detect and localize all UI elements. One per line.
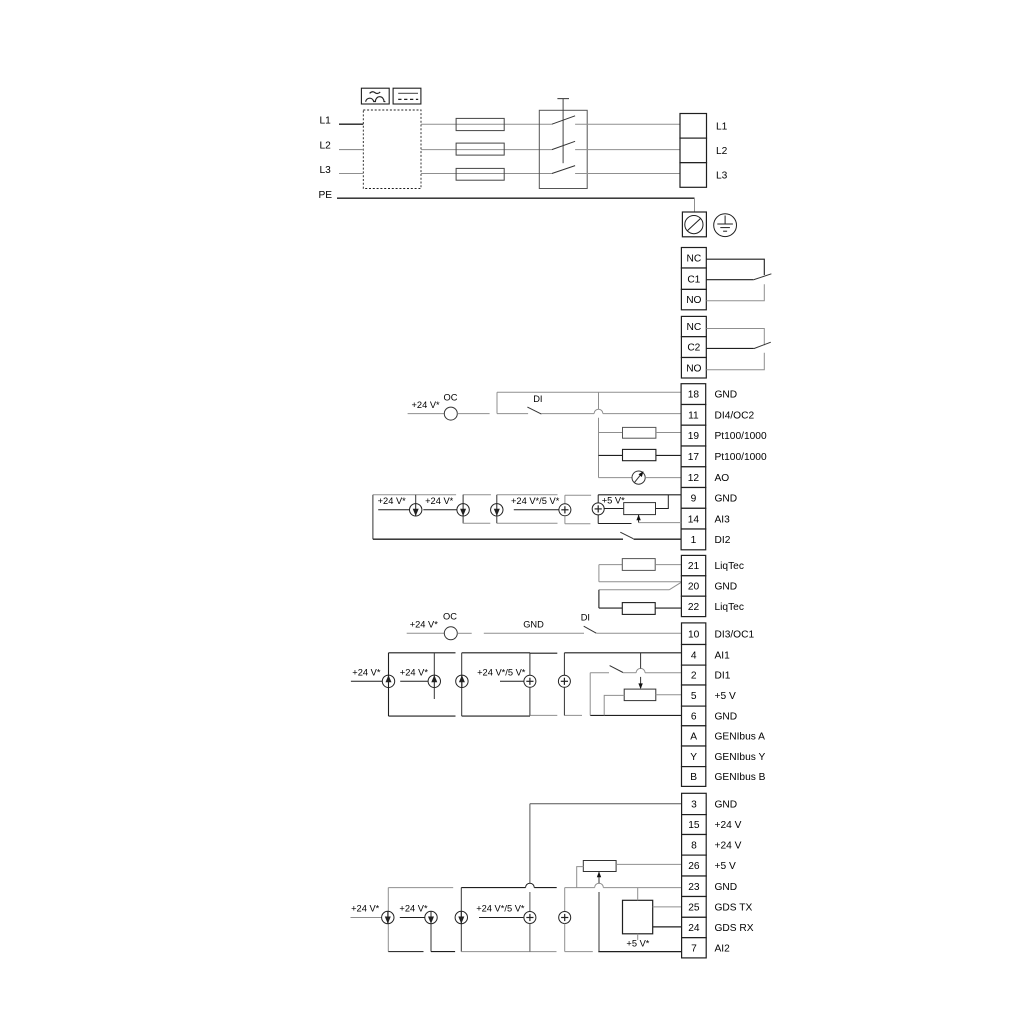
svg-text:1: 1 — [691, 535, 697, 546]
svg-text:25: 25 — [688, 903, 700, 914]
svg-text:PE: PE — [319, 190, 333, 201]
svg-text:10: 10 — [688, 629, 700, 640]
svg-text:+24 V*: +24 V* — [351, 904, 380, 914]
svg-text:C1: C1 — [687, 274, 700, 285]
svg-text:C2: C2 — [687, 343, 700, 354]
svg-text:+24 V*: +24 V* — [352, 668, 381, 678]
svg-text:GND: GND — [715, 390, 738, 401]
svg-text:6: 6 — [691, 712, 697, 723]
svg-text:AI1: AI1 — [715, 650, 731, 661]
svg-text:B: B — [690, 772, 697, 783]
svg-text:A: A — [690, 732, 697, 743]
svg-text:+24 V*: +24 V* — [399, 904, 428, 914]
svg-text:18: 18 — [688, 390, 700, 401]
svg-text:DI3/OC1: DI3/OC1 — [715, 629, 755, 640]
svg-text:GND: GND — [715, 712, 738, 723]
svg-text:+24 V*/5 V*: +24 V*/5 V* — [476, 904, 525, 914]
svg-text:GENIbus B: GENIbus B — [715, 772, 766, 783]
svg-text:GND: GND — [715, 494, 738, 505]
svg-text:+24 V*: +24 V* — [410, 620, 439, 630]
svg-text:DI4/OC2: DI4/OC2 — [715, 410, 755, 421]
svg-text:+5 V: +5 V — [715, 861, 736, 872]
svg-text:26: 26 — [688, 861, 700, 872]
svg-text:DI: DI — [581, 612, 590, 622]
svg-text:+5 V*: +5 V* — [602, 495, 625, 505]
svg-text:GDS RX: GDS RX — [715, 923, 754, 934]
svg-text:AI3: AI3 — [715, 514, 731, 525]
svg-text:17: 17 — [688, 452, 700, 463]
svg-text:+5 V: +5 V — [715, 691, 736, 702]
svg-text:GND: GND — [715, 800, 738, 811]
svg-text:+24 V*: +24 V* — [400, 668, 429, 678]
svg-text:DI2: DI2 — [715, 535, 731, 546]
svg-text:12: 12 — [688, 473, 700, 484]
svg-text:14: 14 — [688, 514, 700, 525]
svg-text:+24 V*: +24 V* — [378, 496, 407, 506]
svg-text:+24 V: +24 V — [715, 840, 742, 851]
svg-text:+24 V*/5 V*: +24 V*/5 V* — [477, 668, 526, 678]
svg-text:NO: NO — [686, 295, 701, 306]
svg-text:+5 V*: +5 V* — [626, 939, 649, 949]
svg-text:LiqTec: LiqTec — [715, 602, 744, 613]
svg-text:11: 11 — [688, 410, 699, 421]
svg-text:Y: Y — [690, 752, 697, 763]
svg-text:7: 7 — [691, 943, 697, 954]
svg-text:5: 5 — [691, 691, 697, 702]
svg-text:21: 21 — [688, 561, 700, 572]
svg-text:AO: AO — [715, 473, 730, 484]
svg-text:15: 15 — [688, 820, 700, 831]
svg-text:24: 24 — [688, 923, 700, 934]
svg-text:GND: GND — [715, 882, 738, 893]
svg-text:L2: L2 — [320, 141, 332, 152]
svg-text:23: 23 — [688, 882, 700, 893]
svg-text:NC: NC — [686, 253, 701, 264]
svg-text:L2: L2 — [716, 146, 728, 157]
svg-text:GENIbus Y: GENIbus Y — [715, 752, 766, 763]
svg-text:20: 20 — [688, 582, 700, 593]
svg-text:22: 22 — [688, 602, 700, 613]
svg-text:4: 4 — [691, 650, 697, 661]
svg-text:+24 V*: +24 V* — [425, 496, 454, 506]
svg-text:NO: NO — [686, 363, 701, 374]
svg-text:DI: DI — [533, 394, 542, 404]
svg-text:L1: L1 — [716, 121, 728, 132]
svg-text:2: 2 — [691, 671, 697, 682]
svg-text:OC: OC — [444, 393, 458, 403]
svg-text:GND: GND — [715, 582, 738, 593]
svg-text:GDS TX: GDS TX — [715, 903, 753, 914]
svg-text:LiqTec: LiqTec — [715, 561, 744, 572]
svg-text:8: 8 — [691, 840, 697, 851]
svg-text:AI2: AI2 — [715, 943, 731, 954]
svg-text:19: 19 — [688, 431, 700, 442]
svg-text:+24 V*: +24 V* — [412, 400, 441, 410]
svg-text:Pt100/1000: Pt100/1000 — [715, 452, 767, 463]
svg-text:3: 3 — [691, 800, 697, 811]
svg-text:OC: OC — [443, 612, 457, 622]
svg-text:9: 9 — [691, 494, 697, 505]
svg-text:GND: GND — [523, 620, 544, 630]
svg-text:Pt100/1000: Pt100/1000 — [715, 431, 767, 442]
svg-text:L3: L3 — [320, 165, 332, 176]
svg-text:GENIbus A: GENIbus A — [715, 732, 766, 743]
svg-text:L1: L1 — [320, 116, 332, 127]
svg-text:L3: L3 — [716, 171, 728, 182]
svg-text:NC: NC — [686, 322, 701, 333]
svg-text:DI1: DI1 — [715, 671, 731, 682]
svg-text:+24 V*/5 V*: +24 V*/5 V* — [511, 496, 560, 506]
svg-text:+24 V: +24 V — [715, 820, 742, 831]
